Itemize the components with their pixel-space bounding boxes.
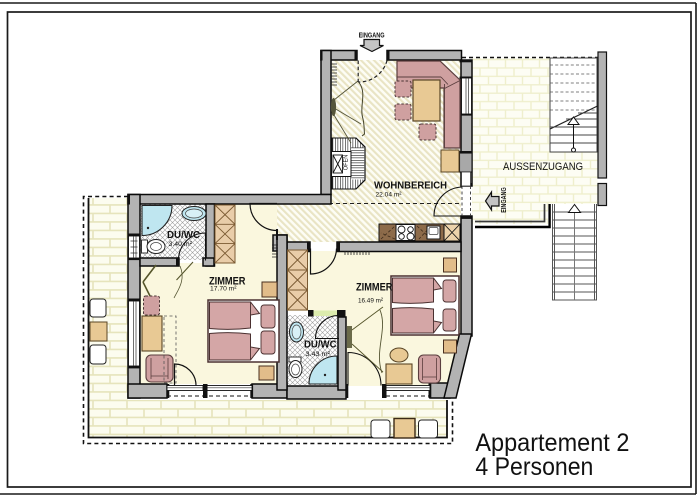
- svg-text:22.04 m²: 22.04 m²: [376, 192, 403, 199]
- svg-text:DU/WC: DU/WC: [167, 229, 200, 241]
- svg-text:4 Personen: 4 Personen: [475, 453, 593, 481]
- svg-text:3.40 m²: 3.40 m²: [169, 241, 193, 248]
- svg-text:AUSSENZUGANG: AUSSENZUGANG: [503, 161, 583, 173]
- svg-text:3.43 m²: 3.43 m²: [306, 351, 331, 358]
- svg-text:DU/WC: DU/WC: [304, 339, 337, 351]
- svg-text:OFEN: OFEN: [343, 154, 350, 170]
- svg-text:17.70 m²: 17.70 m²: [210, 286, 237, 293]
- svg-text:EINGANG: EINGANG: [501, 187, 508, 213]
- svg-text:16.49 m²: 16.49 m²: [358, 297, 384, 304]
- svg-text:WOHNBEREICH: WOHNBEREICH: [374, 180, 447, 192]
- svg-text:EINGANG: EINGANG: [359, 33, 385, 40]
- svg-text:ZIMMER: ZIMMER: [356, 282, 393, 294]
